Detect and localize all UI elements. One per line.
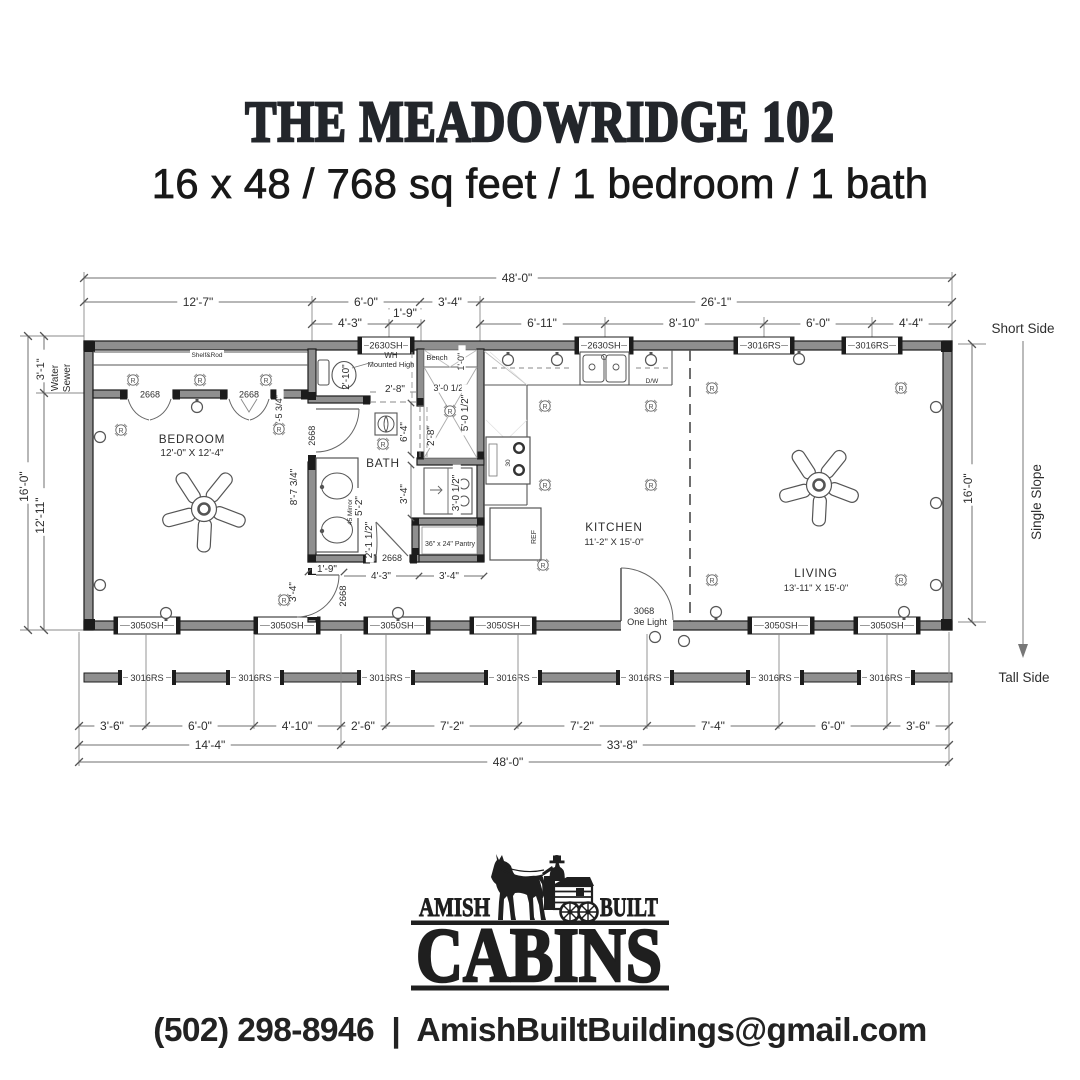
svg-text:36" x 24" Pantry: 36" x 24" Pantry [425,541,476,548]
svg-text:2630SH: 2630SH [587,341,620,351]
svg-text:3016RS: 3016RS [758,673,791,683]
svg-text:1'-9": 1'-9" [317,564,337,575]
svg-text:KITCHEN: KITCHEN [585,520,642,534]
svg-text:6'-0": 6'-0" [821,719,845,733]
svg-text:R: R [542,404,547,411]
svg-text:3016RS: 3016RS [628,673,661,683]
svg-text:R: R [709,578,714,585]
svg-text:45 Mirror: 45 Mirror [347,498,354,525]
svg-text:R: R [447,409,452,416]
svg-text:33'-8": 33'-8" [607,738,638,752]
svg-text:3'-6": 3'-6" [906,719,930,733]
svg-text:16'-0": 16'-0" [961,473,975,504]
svg-text:BATH: BATH [366,456,400,470]
svg-text:One Light: One Light [627,617,667,627]
svg-text:5'-2": 5'-2" [354,496,365,516]
svg-text:3'-0 1/2": 3'-0 1/2" [451,474,462,511]
svg-text:5'-0 1/2": 5'-0 1/2" [460,394,471,431]
svg-text:R: R [542,483,547,490]
svg-text:3016RS: 3016RS [130,673,163,683]
svg-text:1'-0": 1'-0" [456,353,466,371]
svg-text:4'-4": 4'-4" [899,316,923,330]
svg-text:3016RS: 3016RS [855,341,888,351]
svg-text:3016RS: 3016RS [869,673,902,683]
svg-text:6'-4": 6'-4" [399,422,410,442]
svg-text:3'-4": 3'-4" [288,582,299,602]
svg-text:Single Slope: Single Slope [1029,464,1044,540]
svg-text:2668: 2668 [140,390,160,400]
svg-text:14'-4": 14'-4" [195,738,226,752]
svg-text:Tall Side: Tall Side [998,670,1049,685]
svg-text:R: R [118,428,123,435]
svg-text:7'-2": 7'-2" [440,719,464,733]
svg-text:Mounted High: Mounted High [368,360,415,369]
svg-text:7'-2": 7'-2" [570,719,594,733]
svg-text:R: R [648,404,653,411]
svg-text:3'-1": 3'-1" [35,358,47,380]
svg-text:2'-6": 2'-6" [351,719,375,733]
svg-text:2'-10": 2'-10" [341,364,352,390]
svg-text:48'-0": 48'-0" [493,755,524,769]
svg-text:4'-3": 4'-3" [338,316,362,330]
svg-text:3050SH: 3050SH [270,621,303,631]
svg-text:3050SH: 3050SH [130,621,163,631]
svg-text:8'-10": 8'-10" [669,316,700,330]
svg-text:12'-0" X 12'-4": 12'-0" X 12'-4" [160,448,224,459]
svg-text:4'-3": 4'-3" [371,571,391,582]
svg-text:Short Side: Short Side [991,321,1054,336]
svg-text:11'-2" X 15'-0": 11'-2" X 15'-0" [584,537,643,548]
svg-text:3068: 3068 [634,606,654,616]
svg-text:2'-8": 2'-8" [385,384,405,395]
svg-text:6'-0": 6'-0" [806,316,830,330]
svg-text:R: R [898,386,903,393]
svg-text:3'-4": 3'-4" [399,484,410,504]
svg-text:Sewer: Sewer [62,363,73,392]
svg-text:7'-4": 7'-4" [701,719,725,733]
svg-text:D/W: D/W [646,378,660,385]
svg-text:3016RS: 3016RS [238,673,271,683]
svg-text:2668: 2668 [307,426,317,446]
svg-text:12'-11": 12'-11" [33,497,47,533]
svg-text:3050SH: 3050SH [380,621,413,631]
svg-text:26'-1": 26'-1" [701,295,732,309]
svg-text:1'-9": 1'-9" [393,306,417,320]
svg-text:2668: 2668 [382,553,402,563]
svg-text:4'-10": 4'-10" [282,719,313,733]
svg-text:R: R [540,563,545,570]
svg-text:3016RS: 3016RS [747,341,780,351]
svg-text:48'-0": 48'-0" [502,271,533,285]
svg-text:R: R [130,378,135,385]
svg-text:12'-7": 12'-7" [183,295,214,309]
svg-text:R: R [276,427,281,434]
svg-text:3'-4": 3'-4" [438,295,462,309]
svg-text:R: R [281,598,286,605]
svg-text:LIVING: LIVING [794,566,837,580]
svg-text:R: R [898,578,903,585]
svg-text:REF: REF [531,530,538,544]
svg-text:Bench: Bench [426,353,447,362]
svg-text:BEDROOM: BEDROOM [159,432,226,446]
svg-text:3'-0 1/2": 3'-0 1/2" [434,383,467,393]
svg-text:6'-0": 6'-0" [188,719,212,733]
svg-text:R: R [197,378,202,385]
svg-text:6'-0": 6'-0" [354,295,378,309]
svg-text:3'-4": 3'-4" [439,571,459,582]
svg-text:R: R [263,378,268,385]
svg-text:2668: 2668 [239,390,259,400]
svg-text:2'-1 1/2": 2'-1 1/2" [364,521,375,558]
svg-text:2668: 2668 [338,585,349,606]
svg-text:3'-6": 3'-6" [100,719,124,733]
svg-text:R: R [709,386,714,393]
svg-text:Water: Water [50,364,61,391]
svg-text:CABINS: CABINS [416,912,662,998]
svg-text:6'-11": 6'-11" [527,316,557,330]
svg-text:30: 30 [505,459,512,467]
svg-text:3016RS: 3016RS [496,673,529,683]
svg-text:16'-0": 16'-0" [17,471,31,502]
svg-text:3050SH: 3050SH [764,621,797,631]
svg-text:13'-11" X 15'-0": 13'-11" X 15'-0" [784,583,849,594]
svg-text:3050SH: 3050SH [870,621,903,631]
svg-text:Shelf&Rod: Shelf&Rod [191,352,222,359]
svg-text:2630SH: 2630SH [369,341,402,351]
svg-text:8'-7 3/4": 8'-7 3/4" [289,468,300,505]
svg-text:3050SH: 3050SH [486,621,519,631]
svg-text:R: R [380,442,385,449]
svg-text:R: R [648,483,653,490]
svg-text:2'-8": 2'-8" [426,426,437,446]
svg-text:WH: WH [384,351,398,360]
